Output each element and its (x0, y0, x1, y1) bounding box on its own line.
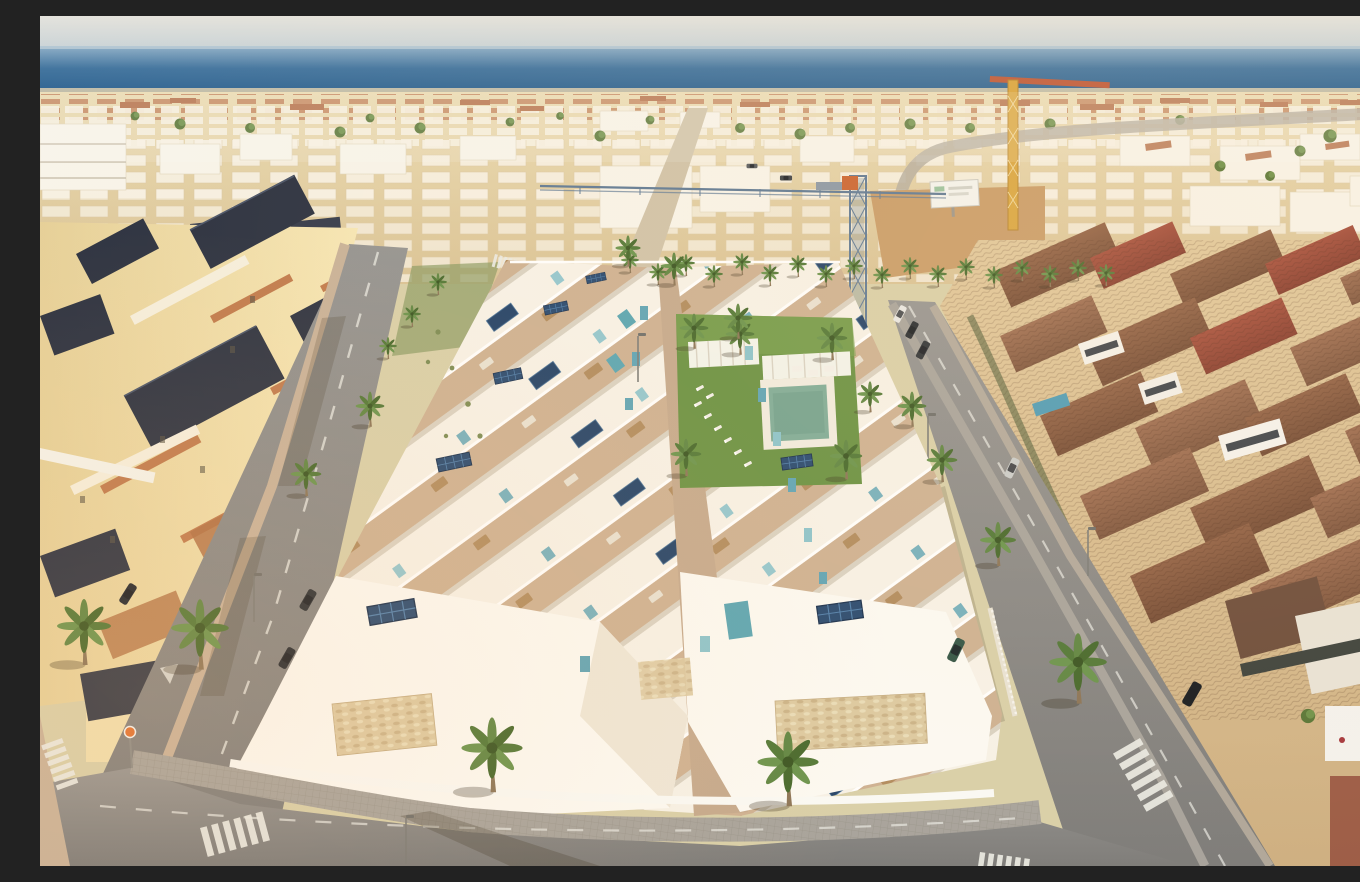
lighting-overlays (40, 16, 1360, 866)
aerial-photo (40, 16, 1360, 866)
